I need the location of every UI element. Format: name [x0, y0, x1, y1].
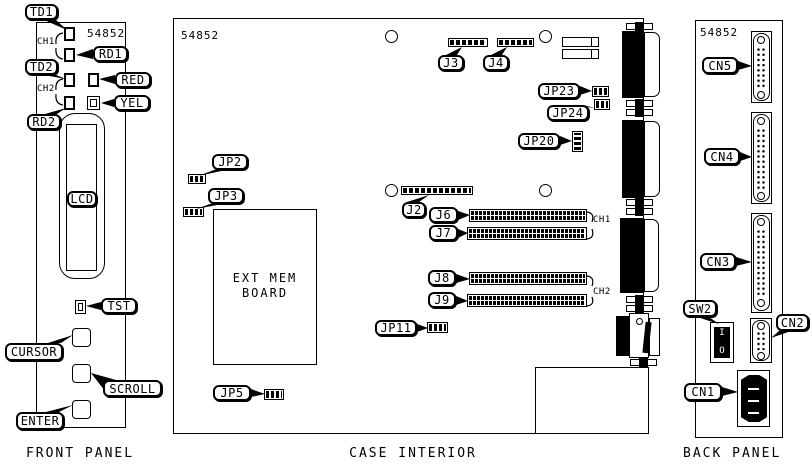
led-yel [87, 96, 100, 110]
callout-lcd: LCD [67, 191, 97, 207]
callout-yel: YEL [114, 95, 150, 111]
screw-hole [385, 184, 398, 197]
inlet-pin [748, 412, 759, 414]
callout-jp23: JP23 [538, 83, 580, 99]
ext-mem-board-label-line2: BOARD [213, 286, 317, 301]
cn4-screw-hole [757, 192, 765, 200]
callout-j7: J7 [429, 225, 458, 241]
led-red [88, 73, 99, 87]
power-supply-box [535, 367, 649, 434]
callout-td1: TD1 [25, 4, 58, 20]
enter-key [72, 400, 91, 419]
callout-td2: TD2 [25, 59, 58, 75]
connector-j9 [467, 294, 587, 307]
jumper-jp20 [572, 131, 583, 152]
case-ch1-label: CH1 [593, 215, 611, 225]
screw-hole [385, 30, 398, 43]
scroll-key [72, 364, 91, 383]
jumper-jp24 [594, 99, 610, 110]
mount-tab [626, 208, 653, 215]
switch-on-mark: I [719, 329, 724, 338]
mount-tab [626, 100, 653, 107]
slot-lower [562, 49, 599, 59]
cn5-pins [756, 47, 767, 88]
led-td1 [64, 27, 75, 41]
front-ch2-label: CH2 [37, 84, 55, 94]
cn3-screw-hole [757, 218, 765, 226]
power-switch-rocker: I O [714, 327, 730, 358]
jumper-jp23 [592, 86, 609, 97]
cn5-screw-hole [757, 36, 765, 44]
edge-connector-top [622, 31, 644, 98]
callout-tst: TST [101, 298, 137, 314]
edge-connector-mid [622, 120, 644, 198]
callout-cn2: CN2 [776, 314, 809, 331]
edge-connector-channel [620, 218, 644, 293]
callout-cn1: CN1 [684, 383, 722, 401]
connector-j7 [467, 227, 587, 240]
mount-tab [626, 23, 653, 30]
inlet-pin [748, 400, 759, 402]
aux-connector-hole [636, 318, 643, 325]
led-rd2 [64, 96, 75, 110]
callout-cn4: CN4 [704, 148, 740, 165]
front-panel-model: 54852 [87, 27, 125, 40]
jumper-jp5 [264, 389, 284, 400]
connector-j2 [401, 186, 473, 195]
cursor-key [72, 328, 91, 347]
connector-j8 [469, 272, 587, 285]
callout-j8: J8 [428, 270, 456, 286]
cn2-pins [756, 331, 767, 350]
callout-jp5: JP5 [213, 385, 251, 401]
slot-upper [562, 37, 599, 47]
case-interior-model: 54852 [181, 29, 219, 42]
mount-tab [626, 296, 653, 303]
callout-jp24: JP24 [547, 105, 589, 121]
edge-connector-shell [644, 219, 659, 292]
mount-tab [630, 359, 657, 366]
connector-j6 [469, 209, 587, 222]
case-interior-caption: CASE INTERIOR [333, 446, 493, 461]
callout-jp2: JP2 [212, 154, 248, 170]
callout-cn3: CN3 [700, 253, 736, 270]
callout-j6: J6 [429, 207, 458, 223]
front-ch1-label: CH1 [37, 37, 55, 47]
callout-enter: ENTER [16, 412, 64, 430]
ext-mem-board-label-line1: EXT MEM [213, 271, 317, 286]
callout-j2: J2 [402, 202, 426, 218]
cn4-screw-hole [757, 117, 765, 125]
jumper-jp2 [188, 174, 206, 184]
callout-j4: J4 [483, 55, 509, 71]
led-rd1 [64, 48, 75, 62]
callout-cn5: CN5 [702, 57, 738, 74]
mount-tab [626, 199, 653, 206]
power-inlet-body [741, 375, 767, 422]
connector-j4 [497, 38, 534, 47]
front-panel-caption: FRONT PANEL [15, 446, 145, 461]
callout-jp3: JP3 [208, 188, 244, 204]
jumper-jp3 [183, 207, 204, 217]
aux-connector-body [616, 316, 629, 356]
callout-cursor: CURSOR [5, 343, 63, 361]
back-panel-model: 54852 [700, 26, 738, 39]
cn3-screw-hole [757, 299, 765, 307]
cn5-screw-hole [757, 91, 765, 99]
screw-hole [539, 30, 552, 43]
edge-connector-shell [644, 121, 660, 197]
switch-off-mark: O [719, 347, 724, 356]
callout-rd2: RD2 [27, 114, 61, 130]
mount-tab [626, 305, 653, 312]
led-td2 [64, 73, 75, 87]
callout-j9: J9 [428, 292, 456, 308]
screw-hole [539, 184, 552, 197]
callout-jp20: JP20 [518, 133, 560, 149]
cn4-pins [756, 128, 767, 189]
cn3-pins [756, 229, 767, 296]
connector-j3 [448, 38, 488, 47]
callout-red: RED [115, 72, 151, 88]
cn2-screw-hole [757, 352, 765, 360]
service-diagram: 54852 CH1 CH2 54852 CH1 CH2 EXT MEM BOAR… [0, 0, 812, 469]
callout-sw2: SW2 [683, 300, 717, 317]
callout-j3: J3 [438, 55, 464, 71]
cn2-screw-hole [757, 322, 765, 330]
led-tst [75, 300, 86, 314]
case-ch2-label: CH2 [593, 287, 611, 297]
back-panel-caption: BACK PANEL [683, 446, 779, 461]
mount-tab [626, 109, 653, 116]
callout-scroll: SCROLL [103, 380, 162, 397]
callout-rd1: RD1 [93, 46, 128, 62]
callout-jp11: JP11 [375, 320, 417, 336]
edge-connector-shell [644, 32, 660, 97]
jumper-jp11 [427, 322, 448, 333]
inlet-pin [748, 388, 759, 390]
